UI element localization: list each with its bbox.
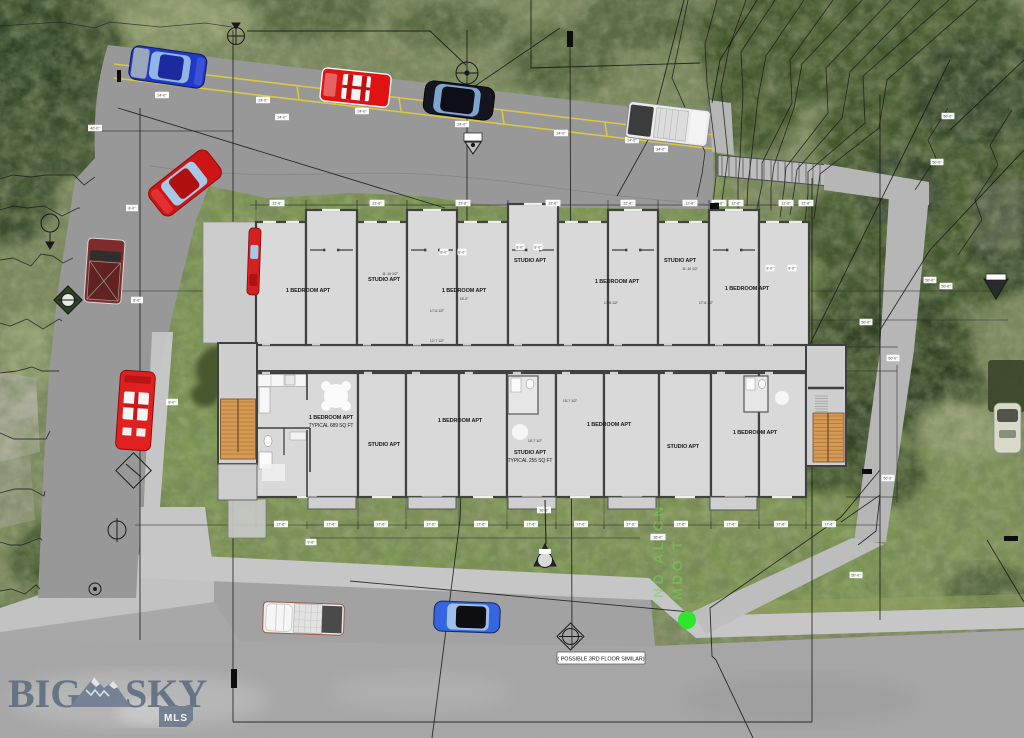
svg-text:8'-0": 8'-0" <box>766 267 774 271</box>
svg-text:MDO T: MDO T <box>669 537 685 600</box>
svg-text:17'-6": 17'-6" <box>526 523 536 527</box>
svg-text:8'-0": 8'-0" <box>458 251 466 255</box>
svg-text:50'-0": 50'-0" <box>943 115 953 119</box>
svg-text:8'-0": 8'-0" <box>788 267 796 271</box>
svg-text:STUDIO APT: STUDIO APT <box>368 277 401 283</box>
svg-text:22'-6": 22'-6" <box>623 202 633 206</box>
svg-text:STUDIO APT: STUDIO APT <box>664 258 697 264</box>
svg-text:17'-6": 17'-6" <box>824 523 834 527</box>
svg-text:12'-6": 12'-6" <box>781 202 791 206</box>
svg-text:17'-6": 17'-6" <box>776 523 786 527</box>
svg-text:40'-0": 40'-0" <box>90 127 100 131</box>
svg-text:50'-0": 50'-0" <box>888 357 898 361</box>
svg-text:15'-7 1/2": 15'-7 1/2" <box>563 399 578 403</box>
svg-text:24'-0": 24'-0" <box>556 132 566 136</box>
svg-text:1 BEDROOM APT: 1 BEDROOM APT <box>587 422 632 428</box>
svg-text:8'-0": 8'-0" <box>516 246 524 250</box>
svg-text:36'-0": 36'-0" <box>539 509 549 513</box>
svg-text:9'-6": 9'-6" <box>307 541 315 545</box>
svg-text:11'-10 1/2": 11'-10 1/2" <box>382 272 399 276</box>
svg-text:MLS: MLS <box>164 713 188 724</box>
svg-text:17'-6 1/2": 17'-6 1/2" <box>699 301 714 305</box>
svg-text:50'-0": 50'-0" <box>932 161 942 165</box>
svg-text:17'-6": 17'-6" <box>726 523 736 527</box>
svg-text:11'-10 1/2": 11'-10 1/2" <box>682 267 699 271</box>
svg-text:8'-0": 8'-0" <box>534 246 542 250</box>
svg-text:STUDIO APT: STUDIO APT <box>368 442 401 448</box>
svg-text:22'-6": 22'-6" <box>372 202 382 206</box>
svg-text:STUDIO APT: STUDIO APT <box>514 258 547 264</box>
svg-text:50'-0": 50'-0" <box>851 574 861 578</box>
svg-text:50'-0": 50'-0" <box>883 477 893 481</box>
svg-text:50'-0": 50'-0" <box>941 285 951 289</box>
svg-text:8'-0": 8'-0" <box>168 401 176 405</box>
svg-text:1 BEDROOM APT: 1 BEDROOM APT <box>438 418 483 424</box>
svg-text:8'-0": 8'-0" <box>128 207 136 211</box>
svg-text:12'-7 1/2": 12'-7 1/2" <box>430 339 445 343</box>
svg-text:24'-0": 24'-0" <box>157 94 167 98</box>
svg-text:STUDIO APT: STUDIO APT <box>667 444 700 450</box>
svg-text:24'-0": 24'-0" <box>357 110 367 114</box>
svg-text:BIG: BIG <box>8 671 81 716</box>
svg-text:17'-6": 17'-6" <box>576 523 586 527</box>
svg-text:10'-7 1/2": 10'-7 1/2" <box>528 439 543 443</box>
svg-text:16'-0": 16'-0" <box>460 297 469 301</box>
svg-text:1 BEDROOM APT: 1 BEDROOM APT <box>442 288 487 294</box>
svg-text:50'-0": 50'-0" <box>861 321 871 325</box>
svg-text:1 BEDROOM APT: 1 BEDROOM APT <box>725 286 770 292</box>
svg-text:ND AL GN: ND AL GN <box>650 503 666 598</box>
svg-text:TYPICAL 255 SQ FT: TYPICAL 255 SQ FT <box>508 458 553 464</box>
svg-text:( POSSIBLE 3RD FLOOR SIMILAR): ( POSSIBLE 3RD FLOOR SIMILAR) <box>557 657 644 663</box>
svg-text:8'-0": 8'-0" <box>133 299 141 303</box>
svg-text:1 BEDROOM APT: 1 BEDROOM APT <box>595 279 640 285</box>
svg-text:12'-6": 12'-6" <box>731 202 741 206</box>
svg-text:TYPICAL 689 SQ FT: TYPICAL 689 SQ FT <box>309 423 354 429</box>
svg-text:22'-6": 22'-6" <box>272 202 282 206</box>
svg-text:17'-6": 17'-6" <box>376 523 386 527</box>
svg-text:17'-6": 17'-6" <box>276 523 286 527</box>
svg-text:50'-0": 50'-0" <box>925 279 935 283</box>
svg-text:22'-6": 22'-6" <box>458 202 468 206</box>
svg-text:17'-6": 17'-6" <box>326 523 336 527</box>
svg-text:8'-0": 8'-0" <box>440 251 448 255</box>
svg-text:1 BEDROOM APT: 1 BEDROOM APT <box>309 415 354 421</box>
svg-text:17'-6 1/2": 17'-6 1/2" <box>430 309 445 313</box>
svg-text:22'-6": 22'-6" <box>801 202 811 206</box>
svg-text:24'-0": 24'-0" <box>656 148 666 152</box>
svg-text:24'-0": 24'-0" <box>627 139 637 143</box>
svg-text:17'-6": 17'-6" <box>626 523 636 527</box>
svg-text:17'-6": 17'-6" <box>476 523 486 527</box>
svg-text:1 BEDROOM APT: 1 BEDROOM APT <box>733 430 778 436</box>
svg-text:22'-6": 22'-6" <box>548 202 558 206</box>
svg-text:1 BEDROOM APT: 1 BEDROOM APT <box>286 288 331 294</box>
svg-text:24'-0": 24'-0" <box>457 123 467 127</box>
svg-text:17'-6": 17'-6" <box>426 523 436 527</box>
svg-text:17'-6": 17'-6" <box>676 523 686 527</box>
svg-text:24'-0": 24'-0" <box>277 116 287 120</box>
svg-text:24'-0": 24'-0" <box>258 99 268 103</box>
svg-text:17'-6 1/2": 17'-6 1/2" <box>604 301 619 305</box>
svg-text:STUDIO APT: STUDIO APT <box>514 450 547 456</box>
svg-text:12'-6": 12'-6" <box>685 202 695 206</box>
